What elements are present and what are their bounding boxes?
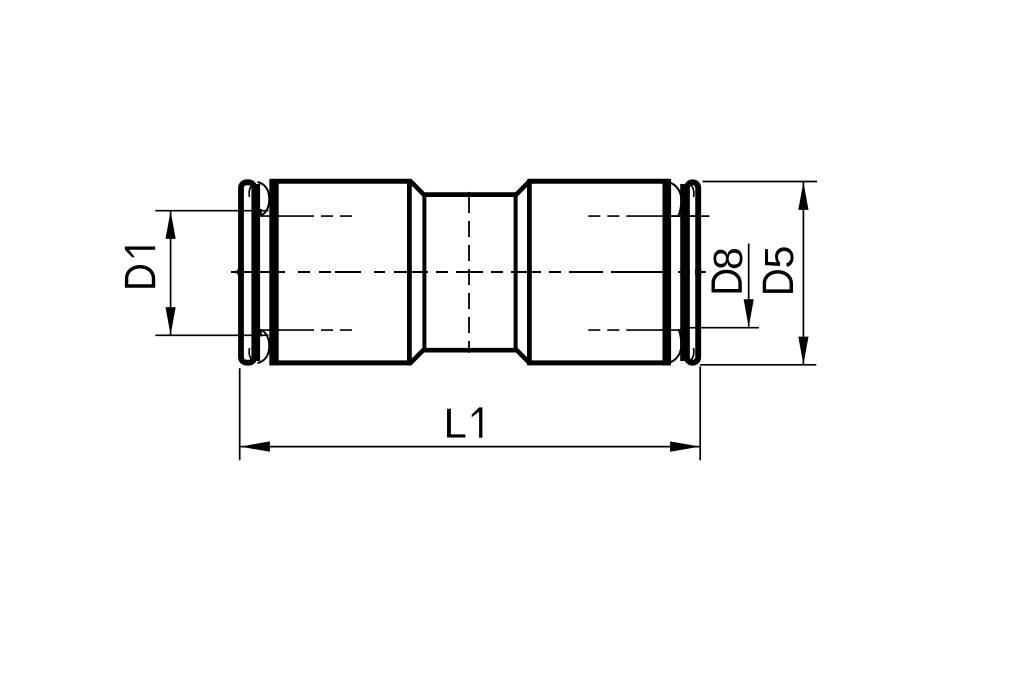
svg-text:5: 5	[756, 246, 802, 269]
svg-text:L: L	[444, 400, 467, 447]
svg-text:8: 8	[705, 247, 751, 270]
